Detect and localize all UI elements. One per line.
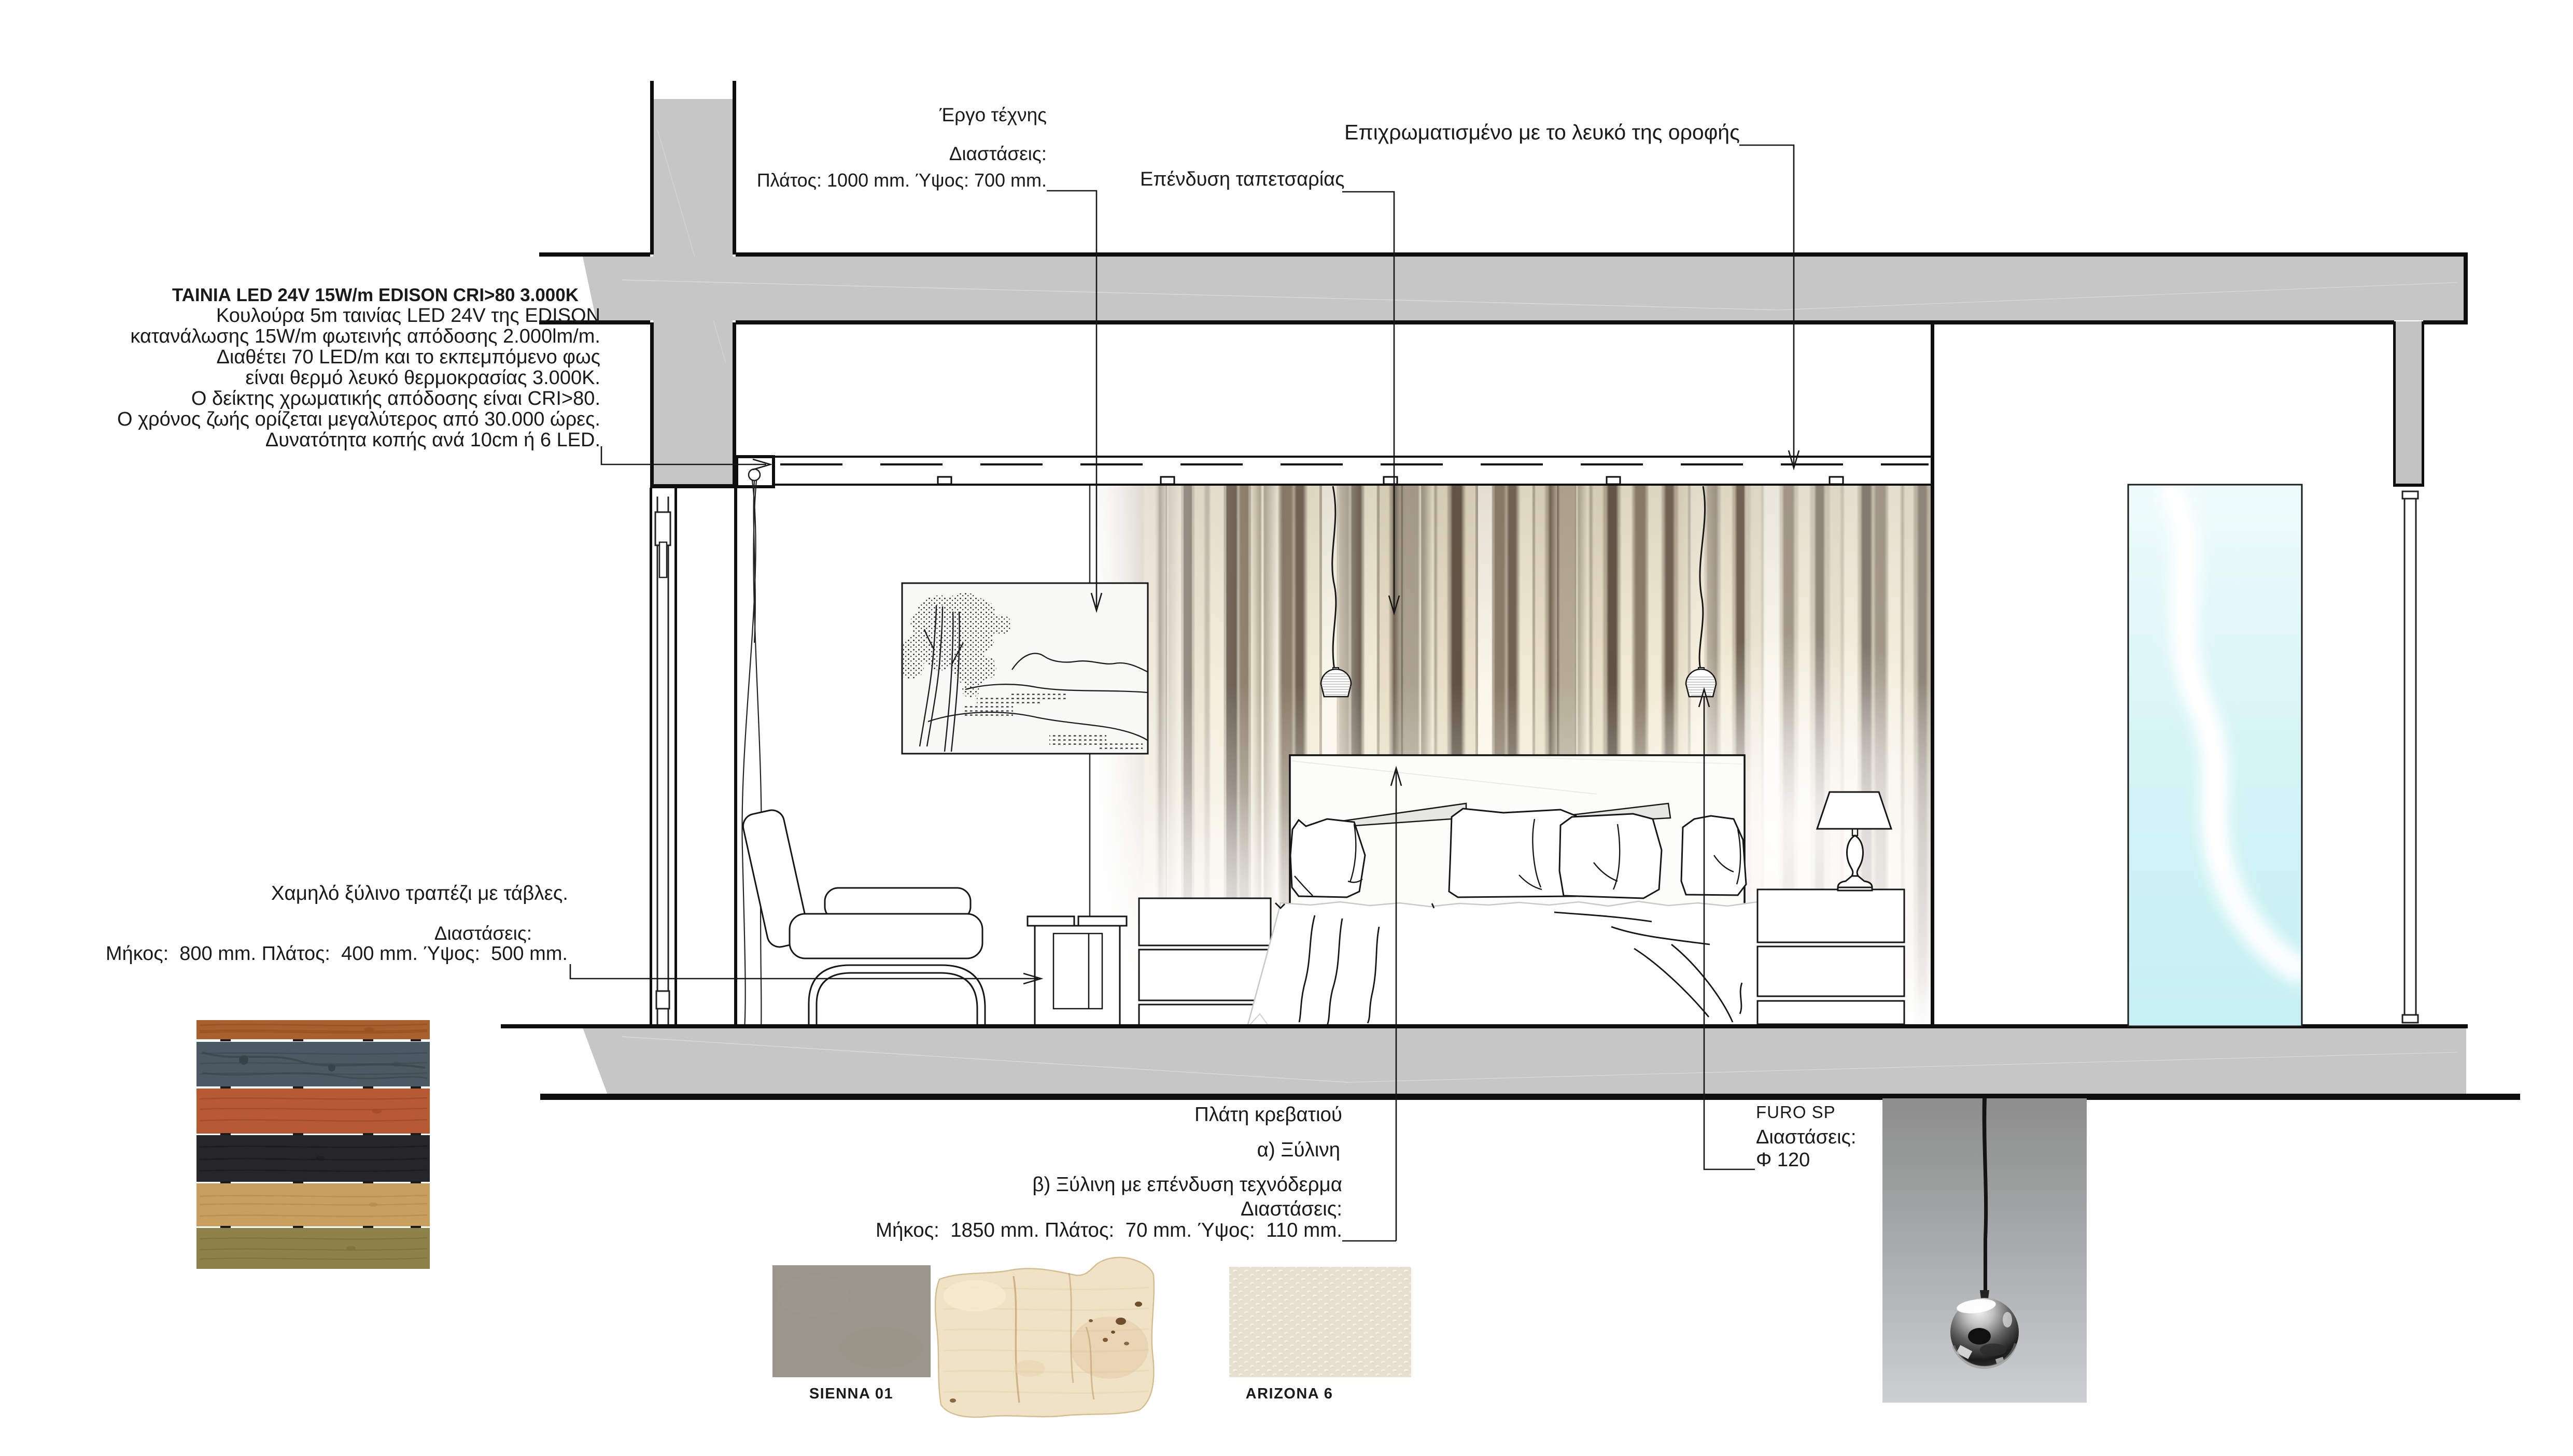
svg-text:Επιχρωματισμένο με το λευκό τη: Επιχρωματισμένο με το λευκό της οροφής [1344,120,1740,144]
svg-text:Ο χρόνος ζωής ορίζεται μεγαλύτ: Ο χρόνος ζωής ορίζεται μεγαλύτερος από 3… [117,408,600,430]
svg-text:Κουλούρα 5m ταινίας LED 24V τη: Κουλούρα 5m ταινίας LED 24V της EDISON [216,305,600,327]
svg-text:Διαστάσεις:: Διαστάσεις: [1756,1126,1856,1148]
svg-text:Διαστάσεις:: Διαστάσεις: [1241,1198,1342,1220]
svg-text:είναι θερμό λευκό θερμοκρασίας: είναι θερμό λευκό θερμοκρασίας 3.000Κ. [245,367,600,389]
svg-text:Διαστάσεις:: Διαστάσεις: [434,923,532,944]
svg-text:Δυνατότητα κοπής ανά 10cm ή 6: Δυνατότητα κοπής ανά 10cm ή 6 LED. [265,429,600,451]
svg-text:Έργο τέχνης: Έργο τέχνης [939,104,1047,125]
svg-text:β) Ξύλινη με επένδυση τεχνόδερ: β) Ξύλινη με επένδυση τεχνόδερμα [1032,1174,1342,1196]
svg-text:SIENNA 01: SIENNA 01 [809,1386,893,1402]
svg-text:Διαθέτει 70 LED/m και το εκπεμ: Διαθέτει 70 LED/m και το εκπεμπόμενο φως [217,346,601,368]
svg-text:Επένδυση ταπετσαρίας: Επένδυση ταπετσαρίας [1140,168,1344,190]
svg-text:Ο δείκτης χρωματικής απόδοσης: Ο δείκτης χρωματικής απόδοσης είναι CRI>… [191,388,600,409]
svg-text:α) Ξύλινη: α) Ξύλινη [1257,1139,1340,1161]
svg-text:Μήκος: 800 mm. Πλάτος: 400 m: Μήκος: 800 mm. Πλάτος: 400 mm. Ύψος: 500… [106,943,568,965]
svg-text:κατανάλωσης 15W/m φωτεινής από: κατανάλωσης 15W/m φωτεινής απόδοσης 2.00… [130,326,600,347]
svg-text:ΤΑΙΝΙΑ LED 24V 15W/m EDISON CR: ΤΑΙΝΙΑ LED 24V 15W/m EDISON CRI>80 3.000… [172,285,579,305]
svg-text:Χαμηλό ξύλινο τραπέζι με τάβλε: Χαμηλό ξύλινο τραπέζι με τάβλες. [271,882,568,904]
svg-text:Μήκος: 1850 mm. Πλάτος: 70 m: Μήκος: 1850 mm. Πλάτος: 70 mm. Ύψος: 110… [876,1219,1342,1241]
svg-text:Διαστάσεις:: Διαστάσεις: [949,143,1047,164]
svg-text:Πλάτος: 1000 mm. Ύψος: 700 mm.: Πλάτος: 1000 mm. Ύψος: 700 mm. [757,169,1047,191]
svg-text:Φ 120: Φ 120 [1756,1149,1810,1171]
svg-text:Πλάτη κρεβατιού: Πλάτη κρεβατιού [1194,1104,1342,1126]
svg-text:ARIZONA 6: ARIZONA 6 [1246,1386,1333,1402]
svg-text:FURO SP: FURO SP [1756,1102,1836,1122]
